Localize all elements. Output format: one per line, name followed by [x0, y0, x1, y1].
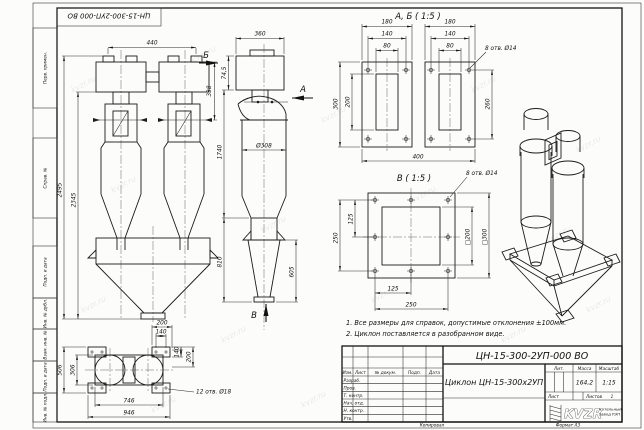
row-utv: Утв. — [344, 416, 353, 422]
dim-label-180: 180 — [381, 20, 392, 26]
note-line-2: 2. Циклон поставляется в разобранном вид… — [346, 330, 505, 338]
sheet-label: Лист — [547, 394, 559, 400]
front-view: 440 338 2495 2345 — [58, 41, 219, 323]
format-label: Формат А3 — [556, 423, 581, 429]
title-block-doc-number: ЦН-15-300-2УП-000 ВО — [476, 351, 589, 362]
dim-label-140: 140 — [175, 346, 181, 357]
dim-label-140: 140 — [381, 32, 392, 38]
dim-label-506: 506 — [58, 364, 64, 375]
margin-field-label: Подп. и дата — [43, 362, 49, 392]
dim-label-125: 125 — [349, 213, 355, 224]
notes: 1. Все размеры для справок, допустимые о… — [346, 319, 566, 338]
dim-label-300: 300 — [334, 98, 340, 109]
dim-label-180: 180 — [444, 20, 455, 26]
margin-field-label: Справ. № — [43, 167, 49, 188]
dim-label-80: 80 — [446, 44, 454, 50]
dim-label-360: 360 — [254, 32, 265, 38]
note-line-1: 1. Все размеры для справок, допустимые о… — [346, 319, 566, 327]
sheets-label: Листов — [585, 394, 603, 400]
view-arrow-label-a: А — [299, 85, 306, 95]
dim-label-440: 440 — [146, 41, 157, 47]
view-arrow-label-b: Б — [203, 51, 209, 61]
dim-label-200: 200 — [346, 96, 352, 107]
side-view: Б А В 360 74,5 Ø308 1740 810 605 — [199, 32, 313, 331]
top-view: 200 140 140 200 506 306 746 946 12 отв. … — [58, 321, 232, 420]
holes-note-ab: 8 отв. Ø14 — [485, 45, 517, 52]
section-ab-title: А, Б ( 1:5 ) — [394, 12, 440, 22]
holes-note-top: 12 отв. Ø18 — [196, 389, 231, 396]
margin-field-label: Подп. и дата — [43, 257, 49, 287]
dim-label-200: 200 — [156, 321, 167, 327]
dim-label-400: 400 — [412, 155, 423, 161]
title-block-name: Циклон ЦН-15-300х2УП — [445, 378, 543, 387]
margin-field-label: Перв. примен. — [43, 52, 49, 84]
company-name-line2: завод РЭП — [599, 412, 620, 417]
sheets-value: 1 — [611, 394, 614, 400]
holes-note-v: 8 отв. Ø14 — [466, 170, 498, 177]
dim-label-260: 260 — [486, 98, 492, 109]
dim-label-140: 140 — [155, 330, 166, 336]
col-doc: № докум. — [374, 370, 396, 376]
dim-label-605: 605 — [290, 266, 296, 277]
scale-value: 1:15 — [602, 380, 616, 387]
dim-label-1740: 1740 — [218, 144, 224, 159]
dim-label-125: 125 — [387, 287, 398, 293]
dim-label-74-5: 74,5 — [222, 66, 228, 79]
drawing-canvas: Перв. примен. Справ. № Подп. и дата Инв.… — [0, 0, 644, 430]
dim-label-80: 80 — [383, 44, 391, 50]
dim-label-2495: 2495 — [58, 182, 64, 197]
scale-label: Масштаб — [599, 366, 620, 372]
stamp-doc-number: ЦН-15-300-2УП-000 ВО — [67, 12, 150, 20]
margin-field-label: Инв. № дубл. — [43, 299, 49, 328]
dim-label-338: 338 — [207, 85, 213, 96]
flange-holes — [364, 66, 473, 143]
mass-label: Масса — [578, 366, 592, 372]
row-razrab: Разраб. — [344, 378, 361, 384]
isometric-view — [502, 109, 620, 323]
dim-label-140: 140 — [444, 32, 455, 38]
dim-label-308: Ø308 — [255, 143, 272, 150]
col-izm: Изм. — [342, 370, 352, 376]
col-data: Дата — [428, 370, 440, 376]
dim-label-746: 746 — [123, 399, 134, 405]
mass-value: 164,2 — [576, 380, 593, 387]
dim-label-946: 946 — [123, 411, 134, 417]
margin-field-label: Взам. инв. № — [43, 330, 49, 360]
col-list: Лист — [354, 370, 366, 376]
dim-label-sq300: □300 — [483, 228, 489, 245]
dim-label-250: 250 — [405, 303, 416, 309]
dim-label-2345: 2345 — [72, 192, 78, 207]
row-tkontr: Т. контр. — [344, 393, 364, 399]
dim-label-810: 810 — [218, 256, 224, 267]
row-nkontr: Н. контр. — [344, 408, 365, 414]
dim-label-sq200: □200 — [466, 228, 472, 245]
company-logo: KVZR Котельный завод РЭП — [550, 405, 622, 421]
col-podp: Подп. — [408, 370, 421, 376]
view-arrow-label-v: В — [251, 311, 257, 321]
copied-label: Копировал — [420, 423, 445, 429]
drawing-sheet: Перв. примен. Справ. № Подп. и дата Инв.… — [0, 0, 644, 430]
margin-field-label: Инв. № подл. — [43, 393, 49, 423]
view-v-title: В ( 1:5 ) — [397, 174, 431, 184]
dim-label-250: 250 — [334, 232, 340, 243]
title-block: Изм. Лист № докум. Подп. Дата Разраб. Пр… — [342, 346, 622, 422]
row-prov: Пров. — [344, 385, 357, 391]
bottom-margin: Копировал Формат А3 — [420, 423, 581, 429]
view-v: В ( 1:5 ) 250 125 □200 □300 125 250 8 от… — [334, 170, 498, 311]
dim-label-200: 200 — [187, 351, 193, 362]
section-ab-view: А, Б ( 1:5 ) 180 140 80 180 140 80 300 2… — [334, 12, 517, 163]
lit-label: Лит. — [553, 366, 564, 372]
top-left-stamp: ЦН-15-300-2УП-000 ВО — [57, 8, 161, 26]
row-nachotd: Нач. отд. — [344, 401, 365, 407]
margin-fields: Перв. примен. Справ. № Подп. и дата Инв.… — [33, 28, 57, 422]
logo-text: KVZR — [564, 407, 603, 421]
dim-label-306: 306 — [71, 364, 77, 375]
